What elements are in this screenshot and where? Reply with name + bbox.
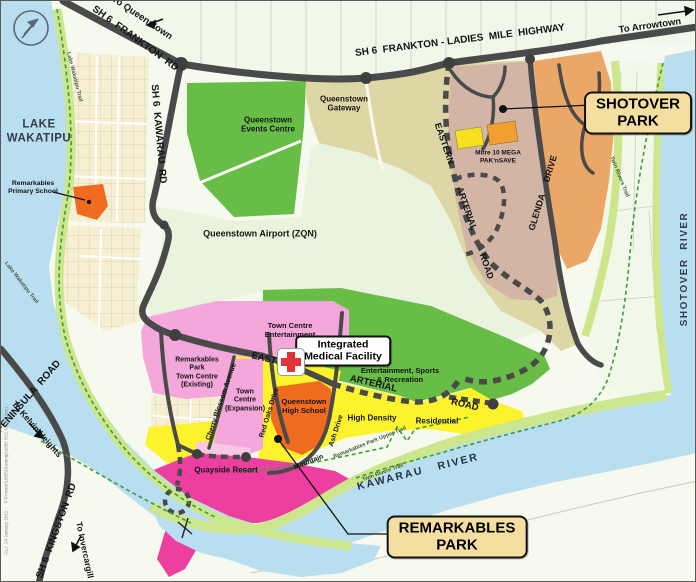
map-canvas: LAKE WAKATIPU SHOTOVER RIVER KAWARAU RIV… [0, 0, 696, 582]
map-graphics [1, 1, 696, 582]
medical-cross-icon [277, 348, 305, 376]
paknsave-building [487, 121, 518, 145]
callout-integrated-medical-facility: Integrated Medical Facility [295, 335, 391, 366]
mitre10-building [455, 127, 484, 149]
callout-shotover-park: SHOTOVER PARK [584, 92, 692, 135]
callout-remarkables-park: REMARKABLES PARK [387, 516, 528, 559]
